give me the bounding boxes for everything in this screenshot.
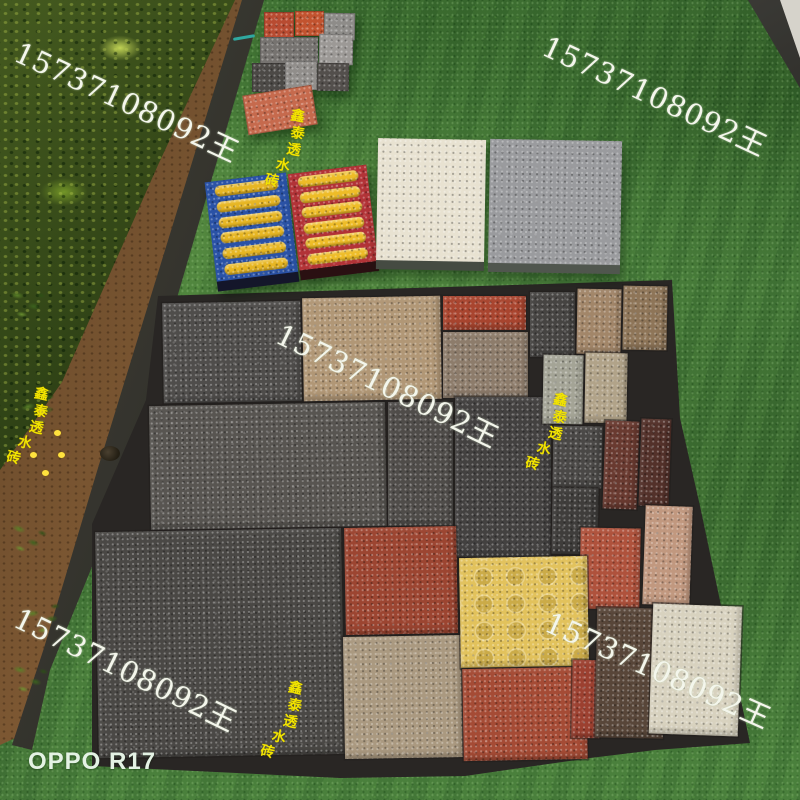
plant-sprig (0, 281, 55, 329)
brick-dark-brick-1 (252, 63, 285, 92)
paver-tile-red-wide-bottom (462, 667, 588, 761)
paver-tile-red-square (344, 526, 458, 635)
paver-tile-brown-small-edge (622, 286, 667, 351)
tactile-bar (220, 225, 285, 244)
tactile-bar (218, 210, 283, 229)
tactile-bar (216, 194, 281, 213)
brick-red-brick-2 (295, 11, 324, 36)
paver-tile-dark-brown-edge (638, 419, 671, 507)
brick-light-gray-brick (319, 34, 354, 66)
brick-gray-brick-wide (260, 37, 318, 64)
tactile-bar (301, 201, 363, 219)
camera-model-label: OPPO R17 (28, 748, 156, 776)
yellow-flower (58, 452, 65, 458)
brick-red-brick-1 (264, 12, 294, 38)
paver-tile-red-strip (443, 296, 526, 330)
tactile-bar (303, 216, 365, 234)
tactile-bar (299, 185, 361, 203)
dirt-clump (100, 446, 120, 461)
paver-tile-light-brown-small (576, 289, 621, 355)
paver-tile-dark-small-1 (530, 292, 575, 357)
paver-tile-maroon-small (602, 420, 639, 509)
paver-tile-light-tan-small (584, 353, 627, 424)
paver-tile-gray-brown-square (443, 332, 528, 398)
red-tactile-plate (288, 165, 379, 281)
cream-slab (376, 138, 486, 271)
paver-tile-pink-small (642, 505, 692, 606)
paver-tile-tan-bottom (343, 635, 463, 759)
yellow-flower (54, 430, 61, 436)
tactile-bar (307, 247, 369, 265)
tactile-bar (224, 257, 289, 276)
photo-scene: 15737108092王15737108092王15737108092王1573… (0, 0, 800, 800)
gray-slab (488, 139, 622, 274)
tactile-bar (222, 241, 287, 260)
paver-tile-wide-dark-rect (149, 402, 387, 530)
yellow-flower (42, 470, 49, 476)
brick-dark-brick-2 (317, 63, 349, 92)
tactile-bar (297, 170, 359, 188)
paver-tile-red-orange-small (579, 527, 640, 609)
tactile-bar (305, 231, 367, 249)
